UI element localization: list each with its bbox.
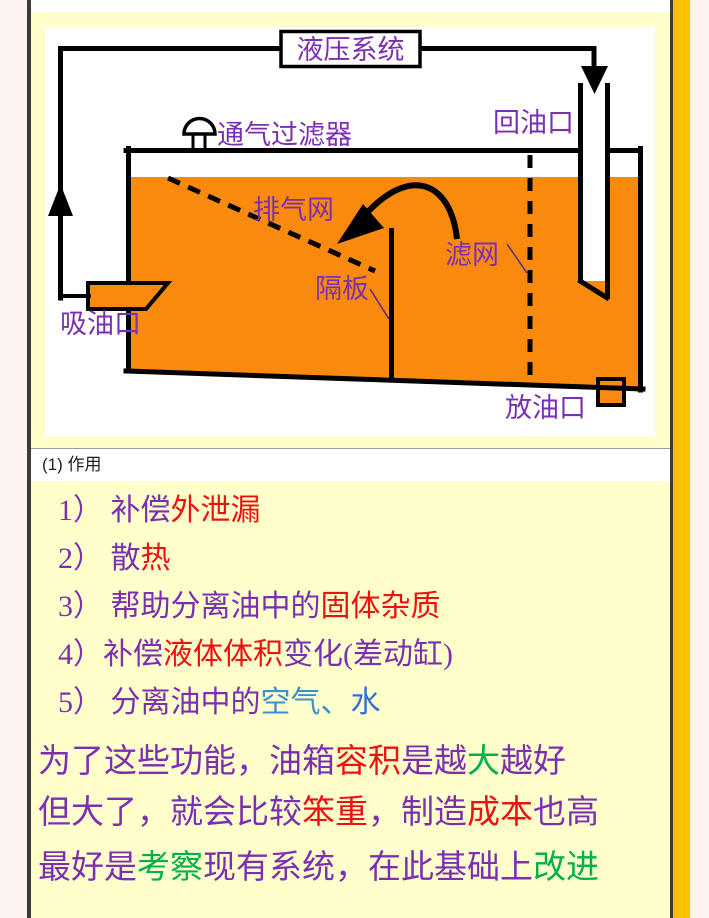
filter-mesh-label: 滤网 <box>445 240 499 270</box>
text-segment: 变化(差动缸) <box>283 638 453 671</box>
oil-fill <box>129 177 641 389</box>
text-segment: 容积 <box>335 744 401 780</box>
return-port-label: 回油口 <box>493 108 574 138</box>
text-segment: 3） 帮助分离油中的 <box>58 590 321 623</box>
note-line-1: 为了这些功能，油箱容积是越大越好 <box>38 738 566 786</box>
text-segment: 2） 散 <box>58 542 141 575</box>
text-segment: 外泄漏 <box>171 494 261 527</box>
oil-tank-diagram: 液压系统 <box>45 27 655 436</box>
drain-port-label: 放油口 <box>505 393 586 423</box>
function-item-1: 1） 补偿外泄漏 <box>58 487 261 535</box>
page: 液压系统 <box>0 0 709 918</box>
top-white-strip <box>31 0 670 12</box>
text-segment: 热 <box>141 542 171 575</box>
function-item-3: 3） 帮助分离油中的固体杂质 <box>58 583 441 631</box>
text-segment: 也高 <box>533 795 599 831</box>
section-heading: (1) 作用 <box>42 449 102 481</box>
text-segment: 5） 分离油中的 <box>58 686 261 719</box>
vent-filter-label: 通气过滤器 <box>217 120 352 150</box>
note-line-3: 最好是考察现有系统，在此基础上改进 <box>38 844 599 892</box>
drain-stub <box>598 379 624 405</box>
text-segment: 为了这些功能，油箱 <box>38 744 335 780</box>
text-segment: 是越 <box>401 744 467 780</box>
text-segment: 但大了，就会比较 <box>38 795 302 831</box>
text-segment: 最好是 <box>38 850 137 886</box>
text-segment: ，制造 <box>368 795 467 831</box>
function-item-5: 5） 分离油中的空气、水 <box>58 679 381 727</box>
text-segment: 考察 <box>137 850 203 886</box>
text-segment: 空气、 <box>261 686 351 719</box>
oil-tank-schematic: 液压系统 <box>45 27 655 436</box>
function-item-2: 2） 散热 <box>58 535 171 583</box>
left-page-border <box>27 0 31 918</box>
text-segment: 改进 <box>533 850 599 886</box>
text-segment: 笨重 <box>302 795 368 831</box>
up-arrow <box>48 184 73 216</box>
baffle-label: 隔板 <box>315 274 369 304</box>
text-segment: 现有系统，在此基础上 <box>203 850 533 886</box>
exhaust-mesh-label: 排气网 <box>253 195 334 225</box>
text-segment: 4）补偿 <box>58 638 163 671</box>
slide: 液压系统 <box>31 0 670 918</box>
system-box-label: 液压系统 <box>297 35 405 65</box>
text-segment: 1） 补偿 <box>58 494 171 527</box>
note-line-2: 但大了，就会比较笨重，制造成本也高 <box>38 789 599 837</box>
text-segment: 成本 <box>467 795 533 831</box>
text-segment: 越好 <box>500 744 566 780</box>
section-heading-band: (1) 作用 <box>31 448 670 481</box>
vent-filter-icon <box>184 118 215 148</box>
text-segment: 大 <box>467 744 500 780</box>
suction-port-label: 吸油口 <box>60 309 141 339</box>
text-segment: 水 <box>351 686 381 719</box>
text-segment: 固体杂质 <box>321 590 441 623</box>
gold-edge-strip <box>673 0 690 918</box>
text-segment: 液体体积 <box>163 638 283 671</box>
function-item-4: 4）补偿液体体积变化(差动缸) <box>58 631 453 679</box>
return-pipe-interior <box>583 83 605 281</box>
